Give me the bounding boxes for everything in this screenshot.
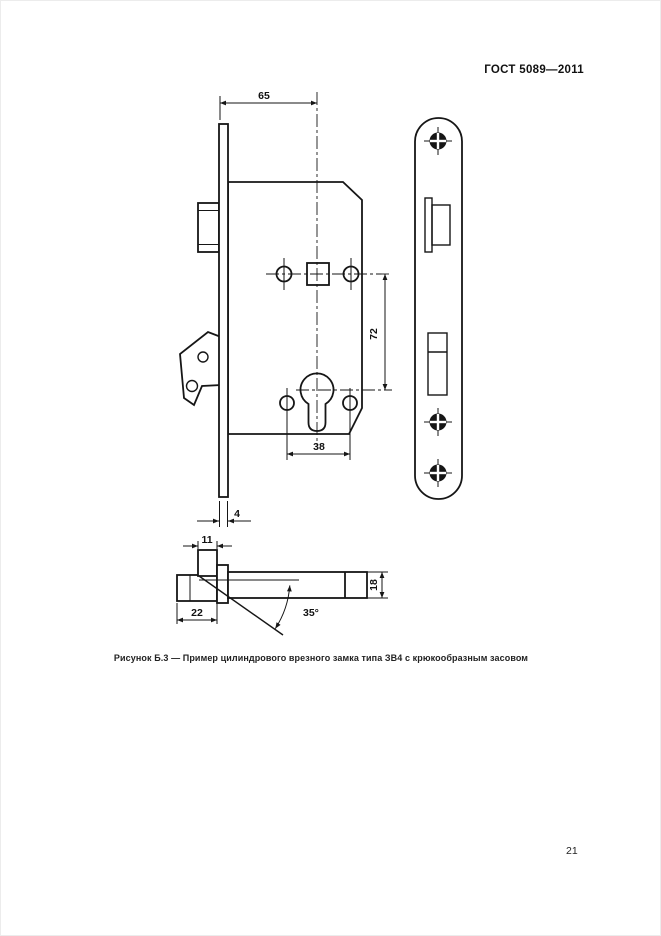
latch-bolt — [198, 203, 219, 252]
lock-front-view: 65 72 38 4 — [180, 90, 392, 527]
figure-caption: Рисунок Б.3 — Пример цилиндрового врезно… — [60, 653, 582, 663]
faceplate-edge — [219, 124, 228, 497]
dim-bolt-thickness: 18 — [367, 572, 388, 598]
dim-swing-angle-label: 35° — [303, 607, 319, 619]
bolt-bottom-view: 35° 11 22 18 — [177, 534, 388, 635]
dim-backset: 65 — [220, 90, 317, 120]
dim-center-distance: 72 — [368, 274, 385, 390]
dim-hook-depth-label: 22 — [191, 607, 203, 619]
technical-drawing: 65 72 38 4 — [0, 0, 661, 936]
dim-hook-width-label: 11 — [201, 534, 212, 546]
page-number: 21 — [566, 845, 578, 857]
lock-case-outline — [228, 182, 362, 434]
document-page: ГОСТ 5089—2011 — [0, 0, 661, 936]
dim-bolt-thickness-label: 18 — [368, 579, 380, 591]
dim-hook-depth: 22 — [177, 603, 217, 624]
faceplate-outline — [415, 118, 462, 499]
dim-faceplate-thickness: 4 — [197, 501, 251, 527]
hook-bolt — [180, 332, 221, 405]
lock-body-section — [228, 572, 367, 598]
hook-block-section — [177, 575, 217, 601]
dim-faceplate-thickness-label: 4 — [234, 508, 240, 520]
dim-center-distance-label: 72 — [368, 328, 380, 340]
faceplate-section — [217, 565, 228, 603]
faceplate-front-view — [415, 118, 462, 499]
hook-section — [198, 550, 217, 576]
dim-backset-label: 65 — [258, 90, 270, 102]
dim-hook-width: 11 — [183, 534, 232, 549]
dim-hole-spacing-label: 38 — [313, 441, 325, 453]
